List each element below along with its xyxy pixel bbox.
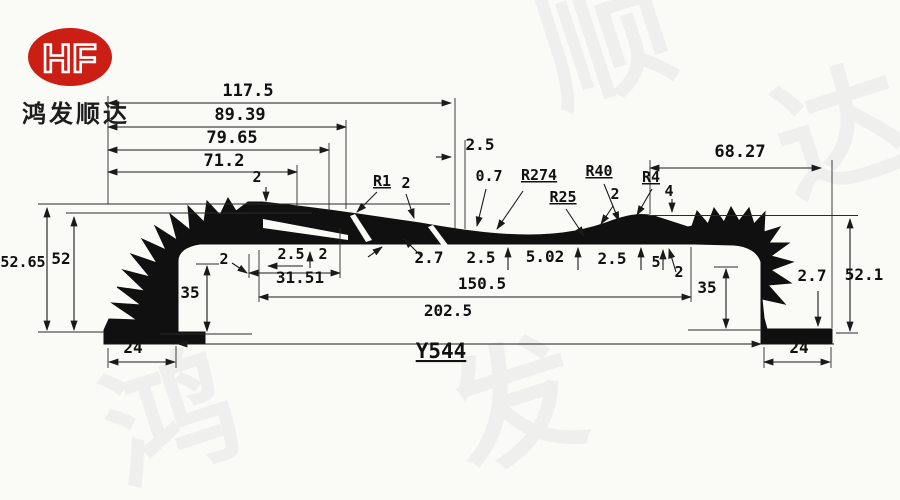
dim-label-24: 24 bbox=[123, 338, 142, 357]
dim-label-2.7: 2.7 bbox=[415, 248, 444, 267]
dim-label-31.51: 31.51 bbox=[276, 268, 324, 287]
dim-label-2: 2 bbox=[318, 245, 327, 263]
watermark-char: 顺 bbox=[522, 0, 691, 132]
dim-label-89.39: 89.39 bbox=[214, 105, 265, 125]
dim-label-52: 52 bbox=[51, 249, 70, 268]
dim-label-2: 2 bbox=[219, 250, 228, 268]
heatsink-profile bbox=[104, 198, 832, 344]
dim-label-R4: R4 bbox=[642, 168, 660, 186]
dim-label-79.65: 79.65 bbox=[206, 128, 257, 148]
dim-label-R40: R40 bbox=[585, 162, 612, 180]
dim-label-2: 2 bbox=[401, 174, 410, 192]
dim-label-150.5: 150.5 bbox=[458, 274, 506, 293]
dim-label-68.27: 68.27 bbox=[714, 142, 765, 162]
dim-label-5.02: 5.02 bbox=[526, 247, 565, 266]
dim-label-2.5: 2.5 bbox=[598, 249, 627, 268]
dim-label-35: 35 bbox=[180, 283, 199, 302]
dim-label-4: 4 bbox=[664, 182, 673, 200]
dim-label-0.7: 0.7 bbox=[475, 167, 502, 185]
watermark-char: 鸿 bbox=[87, 330, 256, 500]
dim-label-52.1: 52.1 bbox=[845, 265, 884, 284]
dim-label-2: 2 bbox=[252, 168, 261, 186]
dim-label-2.5: 2.5 bbox=[467, 248, 496, 267]
dim-label-2: 2 bbox=[610, 185, 619, 203]
dim-label-5: 5 bbox=[651, 253, 660, 271]
dim-label-117.5: 117.5 bbox=[222, 81, 273, 101]
dim-label-35: 35 bbox=[697, 278, 716, 297]
profile-outline bbox=[104, 198, 832, 344]
dim-label-R274: R274 bbox=[521, 166, 557, 184]
watermark-char: 达 bbox=[757, 43, 900, 222]
dim-label-R25: R25 bbox=[549, 188, 576, 206]
dim-label-2.7: 2.7 bbox=[798, 266, 827, 285]
part-number: Y544 bbox=[416, 339, 467, 363]
dim-label-2.5: 2.5 bbox=[277, 245, 304, 263]
dim-label-52.65: 52.65 bbox=[0, 253, 45, 271]
dim-label-24: 24 bbox=[789, 338, 808, 357]
drawing-sheet: HF 鸿发顺达 顺达鸿发 bbox=[0, 0, 900, 500]
dim-label-2: 2 bbox=[674, 263, 683, 281]
dim-label-2.5: 2.5 bbox=[466, 135, 495, 154]
dim-label-202.5: 202.5 bbox=[424, 301, 472, 320]
profile-drawing: 顺达鸿发 bbox=[0, 0, 900, 500]
dim-label-R1: R1 bbox=[373, 172, 391, 190]
dim-label-71.2: 71.2 bbox=[204, 151, 245, 171]
